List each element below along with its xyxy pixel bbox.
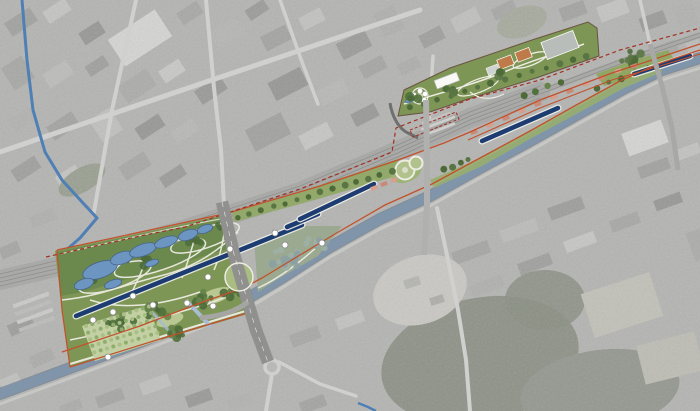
tree — [295, 197, 300, 202]
orchard-tree — [84, 324, 88, 328]
orchard-tree — [92, 329, 96, 333]
tree — [271, 203, 276, 208]
tree — [168, 331, 173, 336]
orchard-tree — [92, 350, 96, 354]
tree — [365, 176, 371, 182]
orchard-tree — [143, 335, 147, 339]
path-marker[interactable] — [150, 302, 156, 308]
orchard-tree — [97, 320, 101, 324]
tree — [293, 263, 300, 270]
tree — [407, 96, 412, 101]
tree — [155, 308, 159, 312]
orchard-tree — [118, 343, 122, 347]
tree — [544, 66, 549, 71]
tree — [462, 89, 467, 94]
tree — [306, 194, 312, 200]
orchard-tree — [97, 342, 101, 346]
orchard-tree — [86, 331, 90, 335]
tree — [532, 88, 539, 95]
orchard-tree — [88, 337, 92, 341]
path-marker[interactable] — [205, 274, 211, 280]
orchard-tree — [95, 335, 99, 339]
tree — [353, 179, 359, 185]
tree — [558, 79, 564, 85]
tree — [217, 225, 222, 230]
tree — [434, 97, 440, 103]
orchard-tree — [116, 314, 120, 318]
orchard-tree — [105, 325, 109, 329]
tree — [389, 168, 396, 175]
orchard-tree — [107, 331, 111, 335]
tree — [544, 83, 550, 89]
orchard-tree — [130, 317, 134, 321]
orchard-tree — [124, 341, 128, 345]
orchard-tree — [109, 338, 113, 342]
tree — [636, 49, 644, 57]
tree — [407, 104, 413, 110]
path-marker[interactable] — [130, 293, 136, 299]
path-marker[interactable] — [282, 242, 288, 248]
orchard-tree — [120, 327, 124, 331]
tree — [475, 85, 480, 90]
tree — [273, 249, 278, 254]
orchard-tree — [105, 347, 109, 351]
tree — [317, 189, 324, 196]
tree — [466, 157, 471, 162]
tree — [376, 172, 382, 178]
map-canvas — [0, 0, 700, 411]
tree — [449, 164, 456, 171]
orchard-tree — [122, 334, 126, 338]
tree — [496, 68, 504, 76]
orchard-tree — [116, 336, 120, 340]
path-marker[interactable] — [90, 317, 96, 323]
tree — [625, 57, 632, 64]
tree — [619, 58, 624, 63]
orchard-tree — [155, 331, 159, 335]
orchard-tree — [103, 340, 107, 344]
tree — [487, 80, 494, 87]
orchard-tree — [149, 311, 153, 315]
tree — [521, 92, 528, 99]
orchard-tree — [113, 329, 117, 333]
orchard-tree — [137, 337, 141, 341]
tree — [570, 56, 576, 62]
orchard-tree — [153, 324, 157, 328]
tree — [413, 94, 422, 103]
tree — [502, 76, 508, 82]
path-marker[interactable] — [210, 303, 216, 309]
tree — [269, 260, 277, 268]
orchard-tree — [101, 333, 105, 337]
orchard-tree — [111, 345, 115, 349]
tree — [530, 69, 535, 74]
orchard-tree — [124, 319, 128, 323]
tree — [458, 160, 464, 166]
orchard-tree — [149, 333, 153, 337]
orchard-tree — [109, 316, 113, 320]
orchard-tree — [90, 344, 94, 348]
east-overpass — [424, 100, 427, 255]
orchard-tree — [147, 326, 151, 330]
tree — [342, 182, 349, 189]
orchard-tree — [111, 323, 115, 327]
path-marker[interactable] — [319, 240, 325, 246]
orchard-tree — [141, 328, 145, 332]
orchard-tree — [103, 318, 107, 322]
tree — [288, 252, 294, 258]
orchard-tree — [99, 327, 103, 331]
orchard-tree — [143, 313, 147, 317]
tree — [303, 240, 309, 246]
tree — [235, 215, 240, 220]
tree — [583, 53, 590, 60]
tree — [329, 186, 335, 192]
orchard-tree — [99, 348, 103, 352]
tree — [627, 49, 632, 54]
tree — [556, 60, 563, 67]
path-marker[interactable] — [184, 300, 190, 306]
tree — [517, 73, 522, 78]
path-marker[interactable] — [110, 309, 116, 315]
path-marker[interactable] — [272, 230, 278, 236]
orchard-tree — [130, 339, 134, 343]
orchard-tree — [137, 315, 141, 319]
masterplan-map[interactable] — [0, 0, 700, 411]
orchard-tree — [128, 310, 132, 314]
tree — [246, 211, 252, 217]
orchard-tree — [134, 308, 138, 312]
orchard-tree — [128, 332, 132, 336]
tree — [276, 260, 281, 265]
tree — [283, 201, 288, 206]
orchard-tree — [122, 312, 126, 316]
path-marker[interactable] — [105, 354, 111, 360]
orchard-tree — [141, 306, 145, 310]
orchard-tree — [118, 321, 122, 325]
tree — [258, 207, 264, 213]
path-marker[interactable] — [227, 246, 233, 252]
tree — [449, 94, 454, 99]
tree — [440, 166, 447, 173]
orchard-tree — [134, 330, 138, 334]
